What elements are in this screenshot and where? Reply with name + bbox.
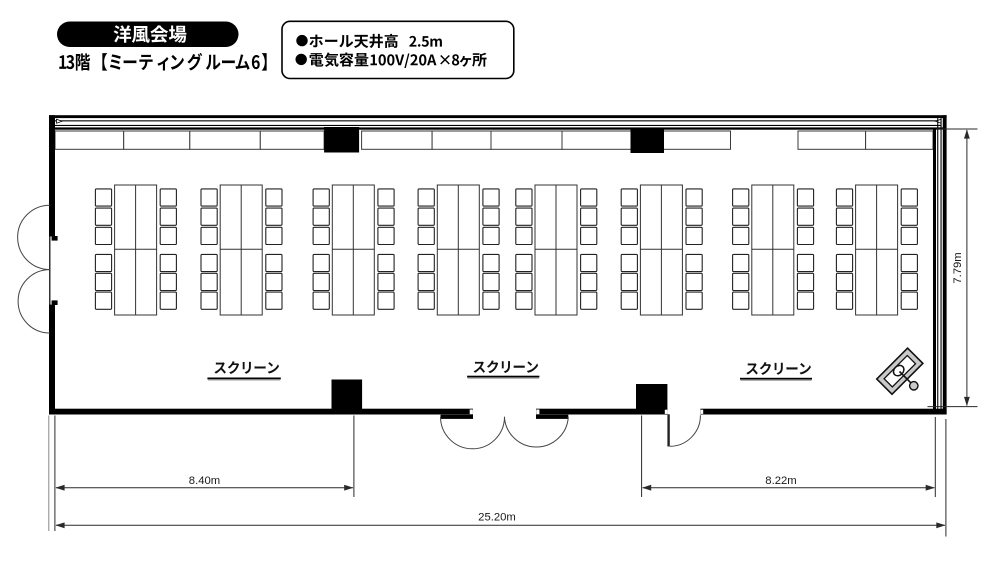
svg-text:25.20m: 25.20m <box>478 511 516 523</box>
svg-text:7.79m: 7.79m <box>952 252 964 283</box>
svg-text:8.40m: 8.40m <box>189 475 220 487</box>
svg-text:8.22m: 8.22m <box>765 475 796 487</box>
